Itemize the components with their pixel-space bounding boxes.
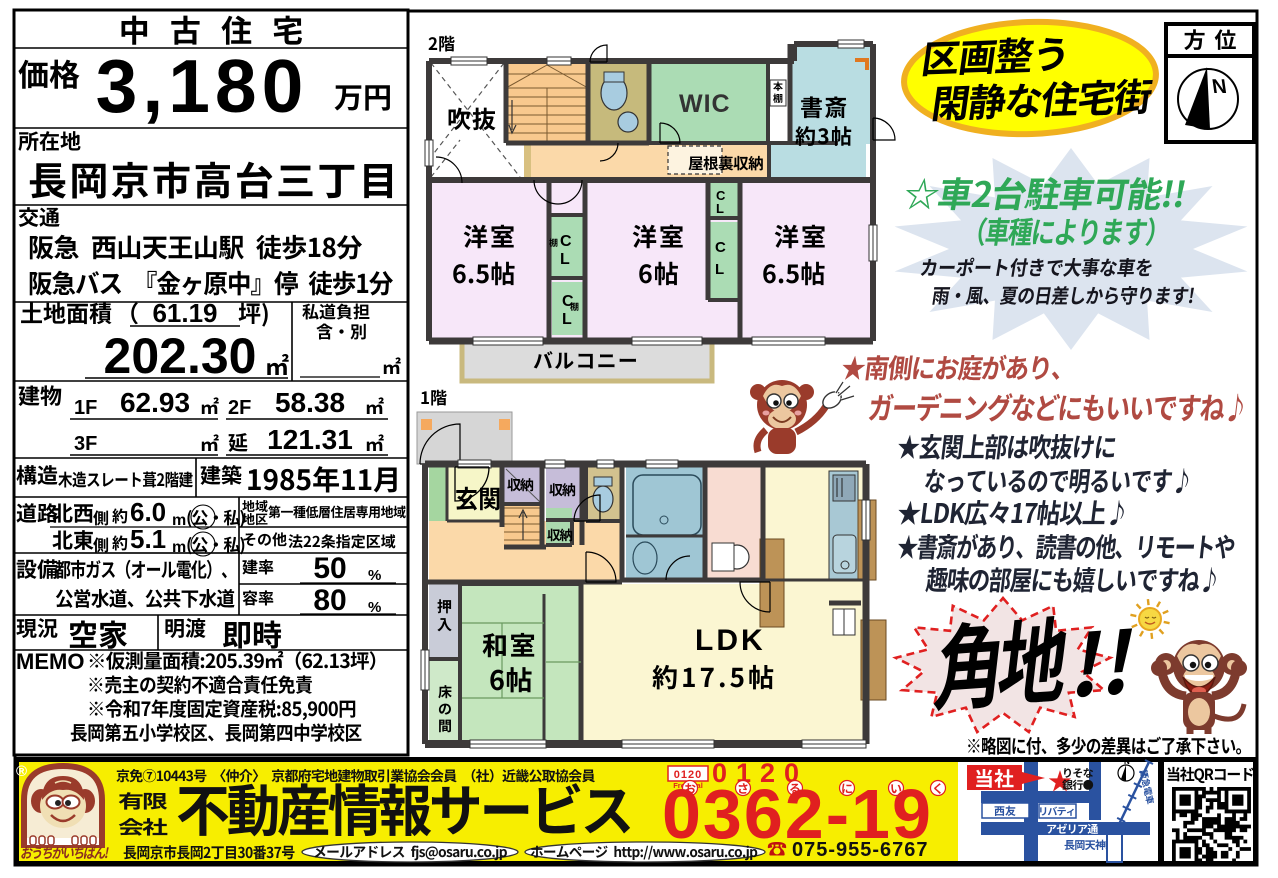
svg-text:N: N (1124, 757, 1130, 766)
svg-text:3,180: 3,180 (96, 44, 309, 128)
svg-text:LDK: LDK (695, 624, 766, 657)
svg-text:80: 80 (313, 584, 346, 617)
svg-text:MEMO: MEMO (16, 649, 84, 674)
svg-text:C: C (715, 239, 726, 256)
svg-text:6.0: 6.0 (130, 497, 166, 527)
svg-text:62.93: 62.93 (120, 387, 190, 418)
svg-text:50: 50 (313, 552, 346, 585)
svg-text:2F: 2F (228, 397, 251, 419)
svg-text:3F: 3F (74, 433, 97, 455)
svg-text:L: L (716, 201, 724, 216)
svg-text:WIC: WIC (679, 90, 731, 118)
svg-text:C: C (560, 233, 572, 250)
svg-text:L: L (562, 311, 572, 328)
svg-text:202.30: 202.30 (104, 328, 257, 384)
svg-text:%: % (368, 567, 381, 584)
svg-text:5.1: 5.1 (130, 524, 166, 554)
svg-text:C: C (562, 293, 574, 310)
svg-text:0362-19: 0362-19 (662, 775, 933, 853)
svg-text:121.31: 121.31 (267, 424, 353, 455)
svg-text:58.38: 58.38 (275, 387, 345, 418)
svg-text:61.19: 61.19 (152, 298, 217, 328)
svg-text:L: L (715, 261, 724, 278)
svg-text:N: N (1211, 76, 1229, 98)
svg-text:1F: 1F (74, 397, 97, 419)
svg-text:®: ® (16, 763, 27, 780)
svg-text:L: L (560, 251, 570, 268)
